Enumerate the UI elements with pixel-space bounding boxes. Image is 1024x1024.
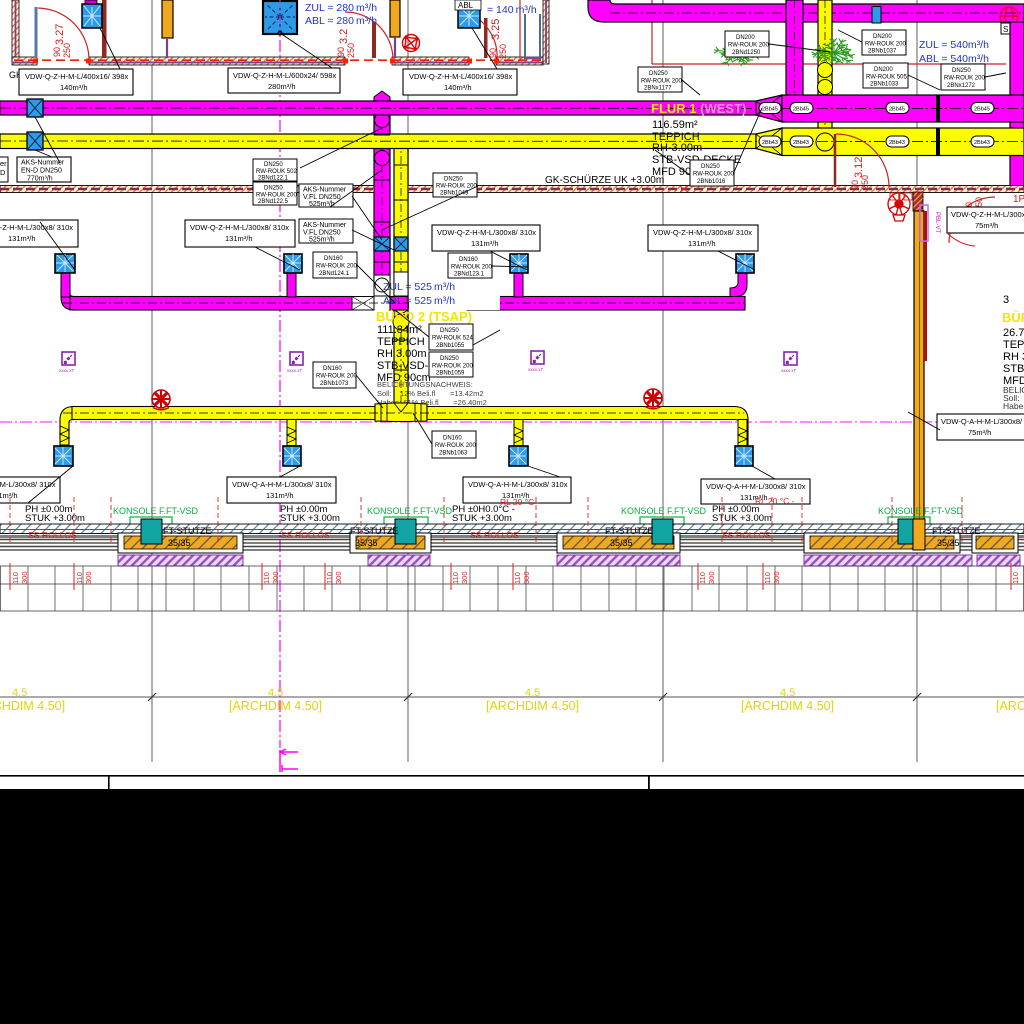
svg-text:DN250: DN250 [701, 164, 720, 170]
svg-text:AKS-Nummer: AKS-Nummer [303, 222, 347, 229]
svg-text:KONSOLE F.FT-VSD: KONSOLE F.FT-VSD [113, 506, 199, 516]
svg-text:KONSOLE F.FT-VSD: KONSOLE F.FT-VSD [621, 506, 707, 516]
svg-text:FT-STUTZE: FT-STUTZE [932, 526, 981, 536]
svg-text:RW-ROUK 200: RW-ROUK 200 [316, 374, 357, 380]
svg-text:TEPPICH: TEPPICH [377, 336, 425, 348]
svg-text:3.12: 3.12 [853, 157, 865, 178]
svg-text:2Bb43: 2Bb43 [793, 140, 809, 146]
svg-text:DN250: DN250 [264, 162, 283, 168]
svg-text:250: 250 [860, 175, 870, 190]
svg-text:VDW-Q-Z-H-M-L/400x16/ 398x: VDW-Q-Z-H-M-L/400x16/ 398x [409, 72, 512, 81]
svg-text:DN160: DN160 [443, 436, 462, 442]
svg-text:VDW-Q-Z-H-M-L/300x8/ 310x: VDW-Q-Z-H-M-L/300x8/ 310x [190, 223, 289, 232]
svg-text:4.5: 4.5 [268, 687, 283, 699]
svg-text:2BNd122.5: 2BNd122.5 [258, 199, 289, 205]
svg-text:DN200: DN200 [873, 34, 892, 40]
svg-text:2BNd123.1: 2BNd123.1 [454, 272, 485, 278]
svg-text:90: 90 [52, 47, 62, 57]
svg-text:[ARCHDIM 4.50]: [ARCHDIM 4.50] [486, 699, 579, 713]
svg-text:300: 300 [772, 571, 781, 584]
svg-text:STUK +3.00m: STUK +3.00m [712, 513, 772, 524]
svg-text:2BNd1250: 2BNd1250 [732, 50, 761, 56]
svg-text:3: 3 [1003, 294, 1009, 306]
svg-text:xxxx.xT: xxxx.xT [528, 367, 544, 372]
svg-text:2Bb45: 2Bb45 [889, 107, 905, 113]
svg-text:STB-: STB- [1003, 363, 1024, 375]
svg-text:35/35: 35/35 [168, 538, 191, 548]
svg-text:300: 300 [20, 571, 29, 584]
svg-text:DN200: DN200 [874, 67, 893, 73]
svg-text:2BNb1063: 2BNb1063 [439, 451, 468, 457]
svg-text:300: 300 [84, 571, 93, 584]
svg-text:110: 110 [763, 572, 772, 584]
svg-text:1P: 1P [1013, 194, 1024, 205]
svg-text:DN160: DN160 [459, 257, 478, 263]
svg-text:VDW-Q-A-H-M-L/300x8/: VDW-Q-A-H-M-L/300x8/ [941, 417, 1023, 426]
svg-text:35/35: 35/35 [937, 538, 960, 548]
svg-text:RW-ROUK 200: RW-ROUK 200 [865, 42, 906, 48]
svg-text:SS-ROLLOS: SS-ROLLOS [28, 530, 77, 540]
svg-text:[ARCHDIM 4.50]: [ARCHDIM 4.50] [0, 699, 65, 713]
svg-text:110: 110 [11, 572, 20, 584]
svg-text:ABL = 525 m³/h: ABL = 525 m³/h [383, 295, 455, 307]
svg-text:300: 300 [334, 571, 343, 584]
svg-text:75m³/h: 75m³/h [968, 428, 991, 437]
svg-text:[ARCHDIM 4.50]: [ARCHDIM 4.50] [741, 699, 834, 713]
svg-text:AKS-Nummer: AKS-Nummer [303, 187, 347, 194]
svg-text:2BNb1055: 2BNb1055 [436, 343, 465, 349]
svg-text:VDW-Q-A-H-M-L/300x8/ 310x: VDW-Q-A-H-M-L/300x8/ 310x [706, 482, 806, 491]
svg-text:2Bb43: 2Bb43 [889, 140, 905, 146]
svg-text:Soll: 12% Beli.fl =13: Soll: 12% Beli.fl =13.42m2 [377, 389, 484, 398]
svg-text:RW-ROUK 502: RW-ROUK 502 [256, 169, 297, 175]
svg-text:FLUR 1 (WEST): FLUR 1 (WEST) [651, 101, 746, 116]
svg-text:300: 300 [460, 571, 469, 584]
svg-text:VDW-Q-Z-H-M-L/300x8/ 310x: VDW-Q-Z-H-M-L/300x8/ 310x [653, 228, 752, 237]
svg-text:V.FL DN250: V.FL DN250 [303, 230, 341, 237]
svg-text:DN250: DN250 [440, 328, 459, 334]
svg-text:2BNb1059: 2BNb1059 [436, 371, 465, 377]
svg-text:D: D [0, 168, 6, 177]
svg-text:ABL = 540m³/h: ABL = 540m³/h [919, 53, 989, 65]
svg-text:= 140 m³/h: = 140 m³/h [487, 4, 537, 16]
svg-text:110: 110 [513, 572, 522, 584]
svg-text:RW-ROUK 200: RW-ROUK 200 [256, 193, 297, 199]
svg-text:2BNd122.1: 2BNd122.1 [258, 176, 289, 182]
svg-text:RW-ROUK 200: RW-ROUK 200 [728, 43, 769, 49]
svg-text:75m³/h: 75m³/h [975, 221, 998, 230]
svg-text:RW-ROUK 524: RW-ROUK 524 [432, 336, 473, 342]
svg-text:TEPPI: TEPPI [1003, 339, 1024, 351]
svg-text:2Bb45: 2Bb45 [793, 107, 809, 113]
svg-text:SS-ROLLOS: SS-ROLLOS [722, 530, 771, 540]
svg-text:280m³/h: 280m³/h [268, 82, 296, 91]
svg-text:BELICHTUNGSNACHWEIS:: BELICHTUNGSNACHWEIS: [377, 380, 473, 389]
svg-text:525m³/h: 525m³/h [309, 237, 335, 244]
svg-text:110: 110 [451, 572, 460, 584]
svg-text:RH 3.00m: RH 3.00m [377, 348, 427, 360]
svg-text:116.59m²: 116.59m² [652, 119, 698, 131]
svg-text:2Bb45: 2Bb45 [762, 107, 778, 113]
svg-text:35/35: 35/35 [610, 538, 633, 548]
svg-text:131m³/h: 131m³/h [471, 239, 499, 248]
svg-text:RH 3.: RH 3. [1003, 351, 1024, 363]
svg-text:525m³/h: 525m³/h [309, 201, 335, 208]
svg-text:RW-ROUK 200: RW-ROUK 200 [641, 79, 682, 85]
svg-text:250: 250 [498, 44, 508, 59]
svg-text:EN-D DN250: EN-D DN250 [21, 168, 62, 175]
svg-text:RW-ROUK 200: RW-ROUK 200 [432, 364, 473, 370]
svg-text:xxxx.xT: xxxx.xT [781, 368, 797, 373]
svg-text:SS-ROLLOS: SS-ROLLOS [281, 530, 330, 540]
svg-text:RW-ROUK 200: RW-ROUK 200 [693, 172, 734, 178]
svg-text:300: 300 [271, 571, 280, 584]
svg-text:2BNb1073: 2BNb1073 [320, 381, 349, 387]
svg-text:2Bb43: 2Bb43 [974, 140, 990, 146]
svg-text:VDW-Q-A-H-M-L/300x8/ 310x: VDW-Q-A-H-M-L/300x8/ 310x [232, 480, 332, 489]
svg-text:STUK +3.00m: STUK +3.00m [452, 513, 512, 524]
svg-text:131m³/h: 131m³/h [8, 234, 36, 243]
svg-text:DN250: DN250 [444, 177, 463, 183]
svg-text:RW-ROUK 505: RW-ROUK 505 [866, 75, 907, 81]
svg-text:ABL: ABL [458, 1, 474, 10]
svg-text:RW-ROUK 200: RW-ROUK 200 [451, 265, 492, 271]
svg-text:DN200: DN200 [736, 35, 755, 41]
svg-text:131m³/h: 131m³/h [266, 491, 294, 500]
svg-text:110: 110 [698, 572, 707, 584]
svg-text:V.FL DN250: V.FL DN250 [303, 194, 341, 201]
svg-text:er: er [0, 159, 7, 168]
svg-text:770m³/h: 770m³/h [27, 176, 53, 183]
svg-text:DN250: DN250 [440, 356, 459, 362]
svg-text:DN250: DN250 [264, 186, 283, 192]
svg-text:FT-STUTZE: FT-STUTZE [163, 526, 212, 536]
svg-text:RW-ROUK 200: RW-ROUK 200 [944, 76, 985, 82]
svg-text:RL 20 °C -: RL 20 °C - [500, 497, 540, 507]
svg-text:300: 300 [707, 571, 716, 584]
svg-text:ZUL = 540m³/h: ZUL = 540m³/h [919, 39, 989, 51]
svg-text:110: 110 [75, 572, 84, 584]
svg-text:FT-STUTZE: FT-STUTZE [350, 526, 399, 536]
svg-text:DN160: DN160 [323, 366, 342, 372]
svg-text:4.5: 4.5 [525, 687, 540, 699]
svg-text:140m³/h: 140m³/h [60, 83, 88, 92]
svg-text:VDW-Q-Z-H-M-L/300x8/ 310x: VDW-Q-Z-H-M-L/300x8/ 310x [437, 228, 536, 237]
svg-text:35/35: 35/35 [355, 538, 378, 548]
svg-text:2BNb1037: 2BNb1037 [868, 49, 897, 55]
svg-text:2BNx1177: 2BNx1177 [644, 86, 672, 92]
svg-text:SS-ROLLOS: SS-ROLLOS [470, 530, 519, 540]
svg-text:2BNb1016: 2BNb1016 [697, 179, 726, 185]
svg-text:VDW-Q-Z-H-M-L/300x8/ 310x: VDW-Q-Z-H-M-L/300x8/ 310x [0, 223, 73, 232]
svg-text:VDW-Q-Z-H-M-L/300x: VDW-Q-Z-H-M-L/300x [951, 210, 1024, 219]
svg-text:300: 300 [522, 571, 531, 584]
svg-text:BÜRO 2 (TSAP): BÜRO 2 (TSAP) [376, 309, 472, 324]
svg-text:140m³/h: 140m³/h [444, 83, 472, 92]
svg-text:RW-ROUK 200: RW-ROUK 200 [435, 443, 476, 449]
svg-text:[ARCHDIM 4.50]: [ARCHDIM 4.50] [229, 699, 322, 713]
svg-text:STUK +3.00m: STUK +3.00m [280, 513, 340, 524]
svg-text:RL 20 °C -: RL 20 °C - [755, 496, 795, 506]
svg-text:GK-SCHÜRZE UK +3.00m: GK-SCHÜRZE UK +3.00m [545, 174, 664, 186]
svg-text:RW-ROUK 200: RW-ROUK 200 [316, 264, 357, 270]
svg-text:250: 250 [346, 43, 356, 58]
svg-text:DN250: DN250 [649, 71, 668, 77]
svg-text:DN250: DN250 [952, 68, 971, 74]
svg-text:110: 110 [1011, 572, 1020, 584]
svg-text:90: 90 [850, 180, 860, 190]
svg-text:ZUL = 280 m³/h: ZUL = 280 m³/h [305, 2, 377, 14]
svg-text:110: 110 [325, 572, 334, 584]
svg-text:2BNd124.1: 2BNd124.1 [319, 271, 350, 277]
svg-text:2BNx1272: 2BNx1272 [947, 83, 976, 89]
svg-text:VDW-Q-Z-H-M-L/600x24/ 598x: VDW-Q-Z-H-M-L/600x24/ 598x [233, 71, 336, 80]
svg-text:PBL-VT: PBL-VT [934, 212, 940, 233]
svg-text:131m³/h: 131m³/h [225, 234, 253, 243]
svg-text:2BNb1033: 2BNb1033 [870, 82, 899, 88]
svg-text:KONSOLE F.FT-VSD: KONSOLE F.FT-VSD [367, 506, 453, 516]
svg-text:4.5: 4.5 [780, 687, 795, 699]
svg-text:2Bb45: 2Bb45 [974, 107, 990, 113]
svg-text:ABL = 280 m³/h: ABL = 280 m³/h [305, 15, 377, 27]
svg-text:KONSOLE F.FT-VSD: KONSOLE F.FT-VSD [878, 506, 964, 516]
svg-text:RH-3.00m: RH-3.00m [652, 142, 702, 154]
svg-text:xxxx.xT: xxxx.xT [59, 368, 75, 373]
svg-text:xxxx.xT: xxxx.xT [287, 368, 303, 373]
svg-text:BÜR: BÜR [1002, 310, 1024, 325]
svg-text:2Bb43: 2Bb43 [762, 140, 778, 146]
svg-text:ZUL = 525 m³/h: ZUL = 525 m³/h [383, 281, 455, 293]
svg-text:110: 110 [262, 572, 271, 584]
svg-text:[ARC: [ARC [996, 699, 1024, 713]
svg-text:DN160: DN160 [324, 256, 343, 262]
svg-text:STB-VSD-D: STB-VSD-D [377, 360, 436, 372]
svg-text:FT-STUTZE: FT-STUTZE [605, 526, 654, 536]
svg-text:STUK +3.00m: STUK +3.00m [25, 513, 85, 524]
svg-text:4.5: 4.5 [12, 687, 27, 699]
svg-text:250: 250 [62, 43, 72, 58]
svg-text:3.25: 3.25 [490, 19, 502, 40]
svg-text:Habens: Habens [1003, 401, 1024, 411]
svg-text:26.71: 26.71 [1003, 327, 1024, 339]
svg-text:2BNb1049: 2BNb1049 [440, 191, 469, 197]
svg-text:90: 90 [336, 47, 346, 57]
svg-text:VDW-Q-A-H-M-L/300x8/ 310x: VDW-Q-A-H-M-L/300x8/ 310x [468, 480, 568, 489]
svg-text:131m³/h: 131m³/h [0, 491, 18, 500]
svg-text:131m³/h: 131m³/h [688, 239, 716, 248]
svg-text:VDW-Q-Z-H-M-L/400x16/ 398x: VDW-Q-Z-H-M-L/400x16/ 398x [25, 72, 128, 81]
svg-text:RW-ROUK 200: RW-ROUK 200 [436, 184, 477, 190]
svg-text:3.2: 3.2 [338, 29, 350, 44]
svg-text:3.27: 3.27 [54, 24, 66, 45]
